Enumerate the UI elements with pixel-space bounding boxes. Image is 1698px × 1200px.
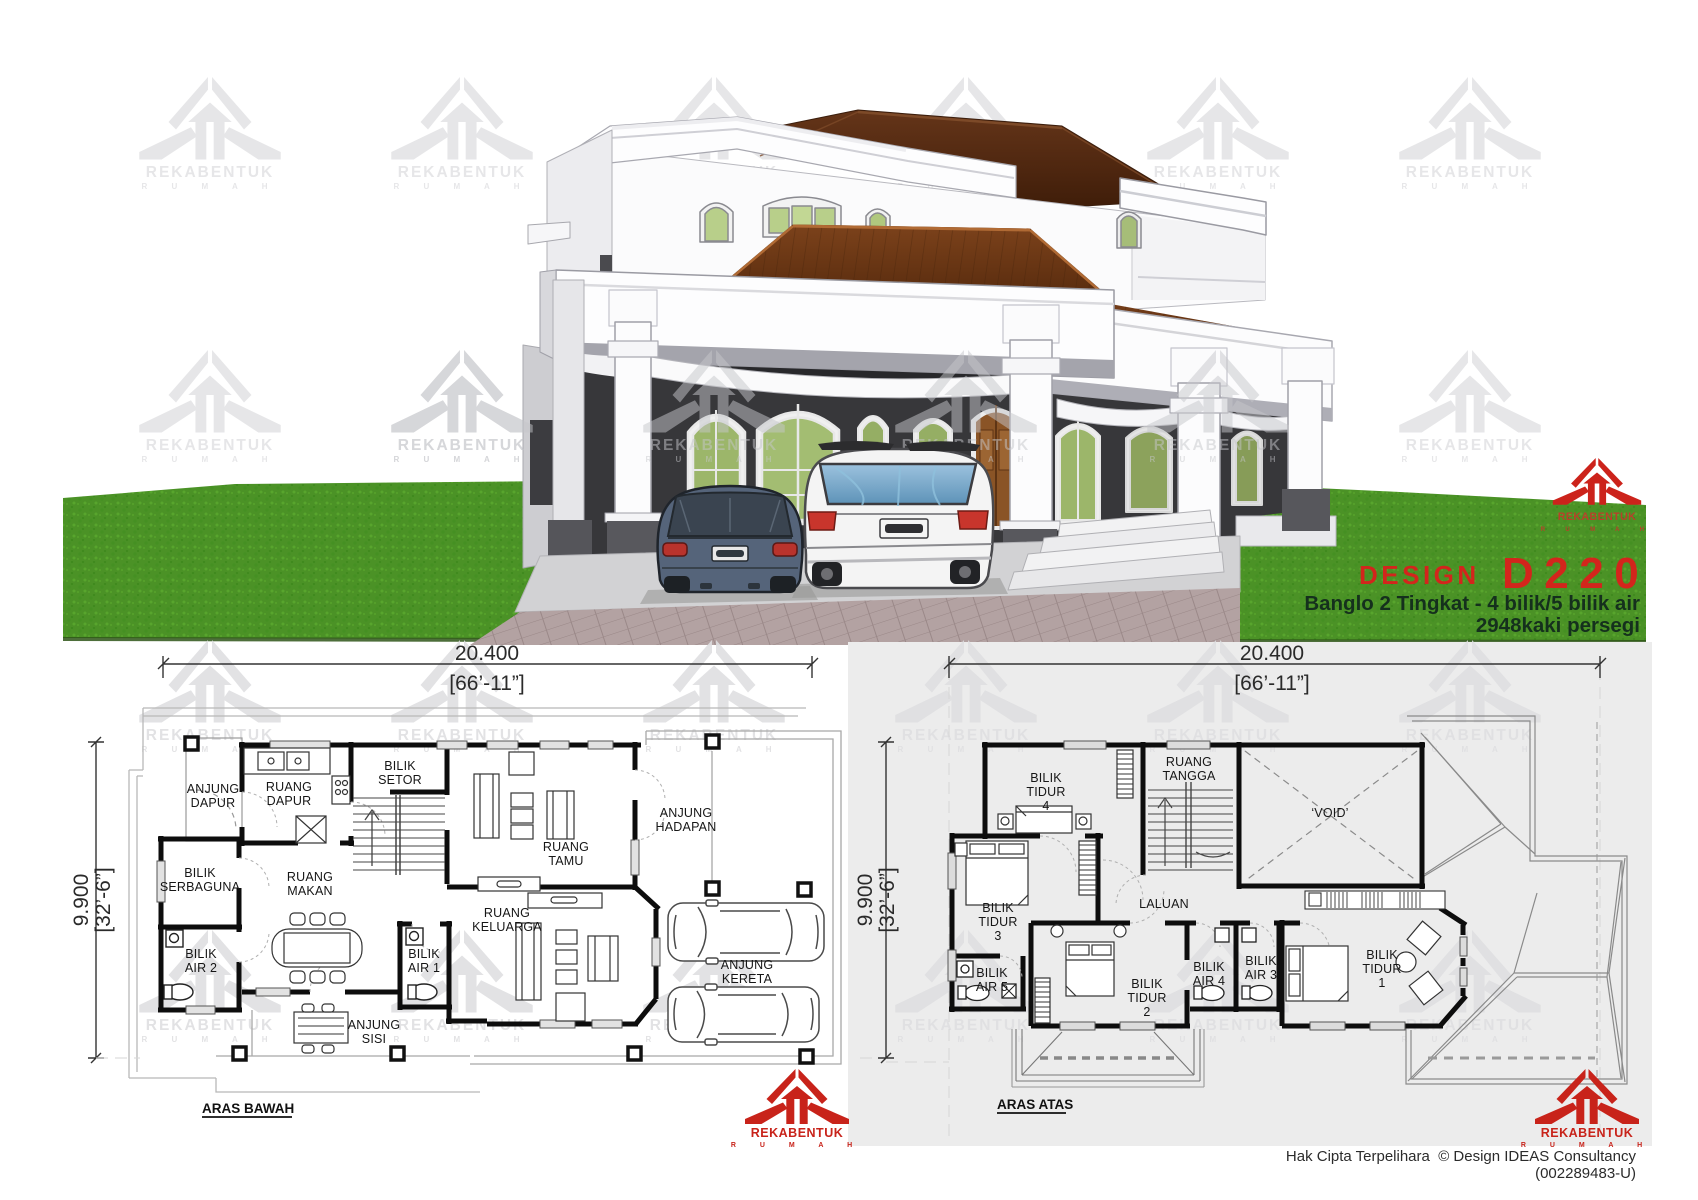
svg-text:SERBAGUNA: SERBAGUNA (160, 880, 241, 894)
svg-text:ANJUNG: ANJUNG (721, 958, 774, 972)
svg-text:BILIK: BILIK (1366, 948, 1398, 962)
svg-text:TIDUR: TIDUR (1026, 785, 1065, 799)
svg-text:9.900: 9.900 (854, 874, 877, 927)
svg-text:TIDUR: TIDUR (978, 915, 1017, 929)
svg-text:TIDUR: TIDUR (1362, 962, 1401, 976)
svg-text:BILIK: BILIK (384, 759, 416, 773)
svg-text:AIR 2: AIR 2 (185, 961, 217, 975)
svg-text:BILIK: BILIK (1030, 771, 1062, 785)
svg-text:BILIK: BILIK (408, 947, 440, 961)
svg-text:RUANG: RUANG (484, 906, 530, 920)
svg-text:Hak Cipta Terpelihara © Desig: Hak Cipta Terpelihara © Design IDEAS Con… (1286, 1148, 1637, 1165)
svg-text:SETOR: SETOR (378, 773, 422, 787)
svg-text:AIR 5: AIR 5 (976, 980, 1008, 994)
svg-text:[66’-11”]: [66’-11”] (449, 672, 524, 695)
svg-text:TIDUR: TIDUR (1127, 991, 1166, 1005)
svg-text:‘VOID’: ‘VOID’ (1311, 806, 1348, 820)
svg-text:KELUARGA: KELUARGA (472, 920, 542, 934)
svg-text:RUANG: RUANG (266, 780, 312, 794)
svg-text:MAKAN: MAKAN (287, 884, 332, 898)
svg-text:KERETA: KERETA (722, 972, 773, 986)
svg-text:DAPUR: DAPUR (267, 794, 312, 808)
svg-text:ARAS BAWAH: ARAS BAWAH (202, 1101, 294, 1116)
svg-text:BILIK: BILIK (185, 947, 217, 961)
svg-text:1: 1 (1378, 976, 1385, 990)
svg-text:TAMU: TAMU (548, 854, 583, 868)
svg-text:RUANG: RUANG (287, 870, 333, 884)
svg-text:20.400: 20.400 (455, 642, 519, 665)
svg-text:DAPUR: DAPUR (191, 796, 236, 810)
svg-text:LALUAN: LALUAN (1139, 897, 1189, 911)
svg-text:RUANG: RUANG (543, 840, 589, 854)
svg-text:BILIK: BILIK (184, 866, 216, 880)
svg-text:ARAS ATAS: ARAS ATAS (997, 1097, 1073, 1112)
svg-text:REKABENTUK: REKABENTUK (751, 1126, 844, 1140)
svg-text:9.900: 9.900 (70, 874, 93, 927)
svg-text:(002289483-U): (002289483-U) (1535, 1165, 1636, 1182)
svg-text:20.400: 20.400 (1240, 642, 1304, 665)
svg-text:ANJUNG: ANJUNG (660, 806, 713, 820)
svg-text:[32’-6”]: [32’-6”] (876, 867, 899, 932)
svg-text:BILIK: BILIK (982, 901, 1014, 915)
svg-text:ANJUNG: ANJUNG (187, 782, 240, 796)
svg-text:R U M A H: R U M A H (1541, 527, 1653, 533)
svg-text:R U M A H: R U M A H (731, 1142, 863, 1149)
svg-text:2948kaki persegi: 2948kaki persegi (1476, 614, 1640, 637)
svg-text:TANGGA: TANGGA (1162, 769, 1216, 783)
svg-text:2: 2 (1143, 1005, 1150, 1019)
svg-text:AIR 1: AIR 1 (408, 961, 440, 975)
svg-text:3: 3 (994, 929, 1001, 943)
svg-text:[66’-11”]: [66’-11”] (1234, 672, 1309, 695)
svg-text:BILIK: BILIK (1131, 977, 1163, 991)
svg-text:AIR 4: AIR 4 (1193, 974, 1225, 988)
svg-text:REKABENTUK: REKABENTUK (1558, 511, 1637, 523)
svg-text:HADAPAN: HADAPAN (656, 820, 717, 834)
svg-text:BILIK: BILIK (1245, 954, 1277, 968)
svg-text:BILIK: BILIK (976, 966, 1008, 980)
svg-text:DESIGN: DESIGN (1359, 560, 1480, 590)
svg-text:RUANG: RUANG (1166, 755, 1212, 769)
svg-text:SISI: SISI (362, 1032, 386, 1046)
svg-text:4: 4 (1042, 799, 1049, 813)
svg-text:ANJUNG: ANJUNG (348, 1018, 401, 1032)
svg-text:BILIK: BILIK (1193, 960, 1225, 974)
svg-text:[32’-6”]: [32’-6”] (92, 867, 115, 932)
svg-text:REKABENTUK: REKABENTUK (1541, 1126, 1634, 1140)
svg-text:Banglo 2 Tingkat - 4 bilik/5 b: Banglo 2 Tingkat - 4 bilik/5 bilik air (1304, 592, 1640, 615)
svg-text:D220: D220 (1502, 549, 1649, 598)
svg-text:AIR 3: AIR 3 (1245, 968, 1277, 982)
